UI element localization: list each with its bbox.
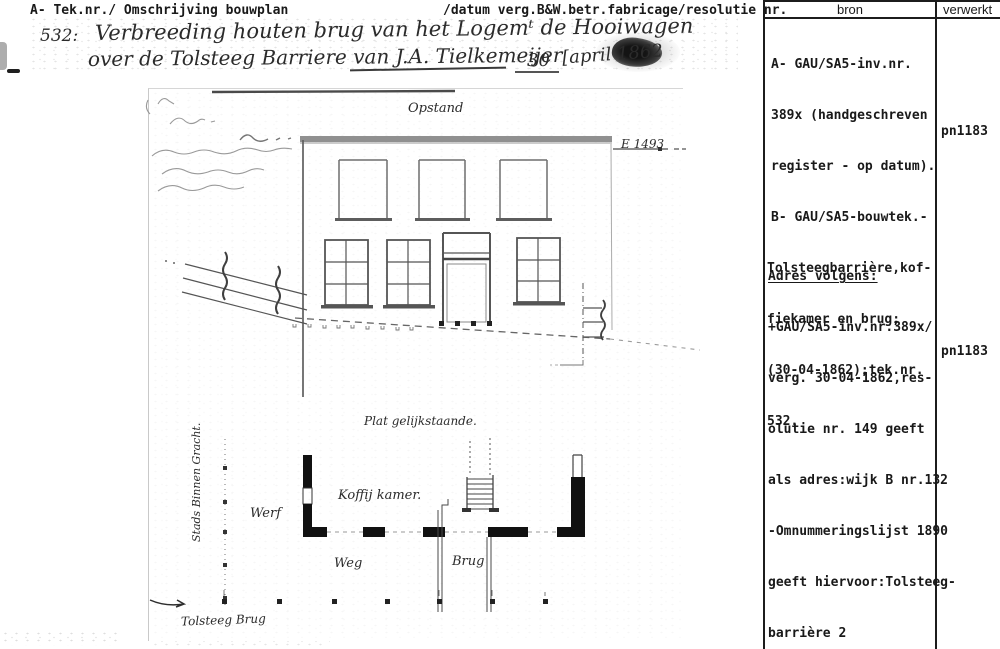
header-left: A- Tek.nr./ Omschrijving bouwplan — [30, 2, 288, 19]
verwerkt-value-1: pn1183 — [941, 123, 988, 140]
label-plat: Plat gelijkstaande. — [364, 414, 477, 428]
pencil-scribbles — [146, 99, 292, 191]
label-werf: Werf — [250, 506, 281, 521]
manuscript-day: 30 — [527, 50, 550, 71]
facade-right-wall — [611, 144, 612, 330]
label-brug: Brug — [452, 554, 484, 569]
bridge-deck-dashed-line — [295, 318, 610, 339]
arrow-mark — [150, 600, 184, 607]
bron-entry-2-line: -Omnummeringslijst 1890 — [768, 523, 956, 540]
bron-entry-2-line: +GAU/SA5-inv.nr.389x/ — [768, 319, 956, 336]
label-koffij-kamer: Koffij kamer. — [338, 488, 421, 503]
door — [439, 233, 492, 326]
bron-entry-2-line: als adres:wijk B nr.132 — [768, 472, 956, 489]
scanned-archive-card: A- Tek.nr./ Omschrijving bouwplan /datum… — [0, 0, 1000, 649]
bron-entry-2-line: geeft hiervoor:Tolsteeg- — [768, 574, 956, 591]
staircase — [462, 438, 499, 512]
upper-windows — [339, 160, 547, 218]
upper-window-sills — [335, 218, 552, 221]
bron-entry-1-line: register - op datum). — [771, 158, 935, 175]
bron-entry-1-line: B- GAU/SA5-bouwtek.- — [771, 209, 935, 226]
label-stads-binnen-gracht: Stads Binnen Gracht. — [190, 450, 203, 542]
scan-artifact-dash — [7, 69, 20, 73]
scan-noise-bottom-left — [0, 630, 120, 646]
bron-entry-1-line: A- GAU/SA5-inv.nr. — [771, 56, 935, 73]
architectural-drawing — [140, 78, 700, 649]
scan-artifact-blot — [0, 42, 7, 70]
bridge-deck-dashed-line-right — [610, 339, 700, 350]
manuscript-underline-day — [515, 71, 559, 73]
bron-entry-2-line: verg. 30-04-1862,res- — [768, 370, 956, 387]
label-e-number: E 1493 — [621, 137, 664, 151]
bron-entry-2-line: barrière 2 — [768, 625, 956, 642]
right-railing — [550, 283, 605, 365]
bron-entry-2: Adres volgens: +GAU/SA5-inv.nr.389x/ ver… — [768, 234, 956, 649]
label-tolsteeg-brug: Tolsteeg Brug — [181, 612, 266, 629]
drawing-top-rule — [212, 91, 455, 92]
bron-entry-2-line: olutie nr. 149 geeft — [768, 421, 956, 438]
label-opstand: Opstand — [408, 101, 463, 116]
column-header-bron: bron — [767, 1, 933, 18]
table-divider-left — [763, 0, 765, 649]
bron-entry-1-line: 389x (handgeschreven — [771, 107, 935, 124]
bridge-piles — [222, 590, 548, 604]
verwerkt-value-2: pn1183 — [941, 343, 988, 360]
bron-entry-2-heading: Adres volgens: — [768, 268, 956, 285]
left-railing — [165, 252, 307, 324]
manuscript-number: 532: — [40, 26, 78, 46]
facade-cornice — [300, 136, 612, 142]
label-weg: Weg — [334, 556, 362, 571]
column-header-verwerkt: verwerkt — [943, 1, 992, 18]
